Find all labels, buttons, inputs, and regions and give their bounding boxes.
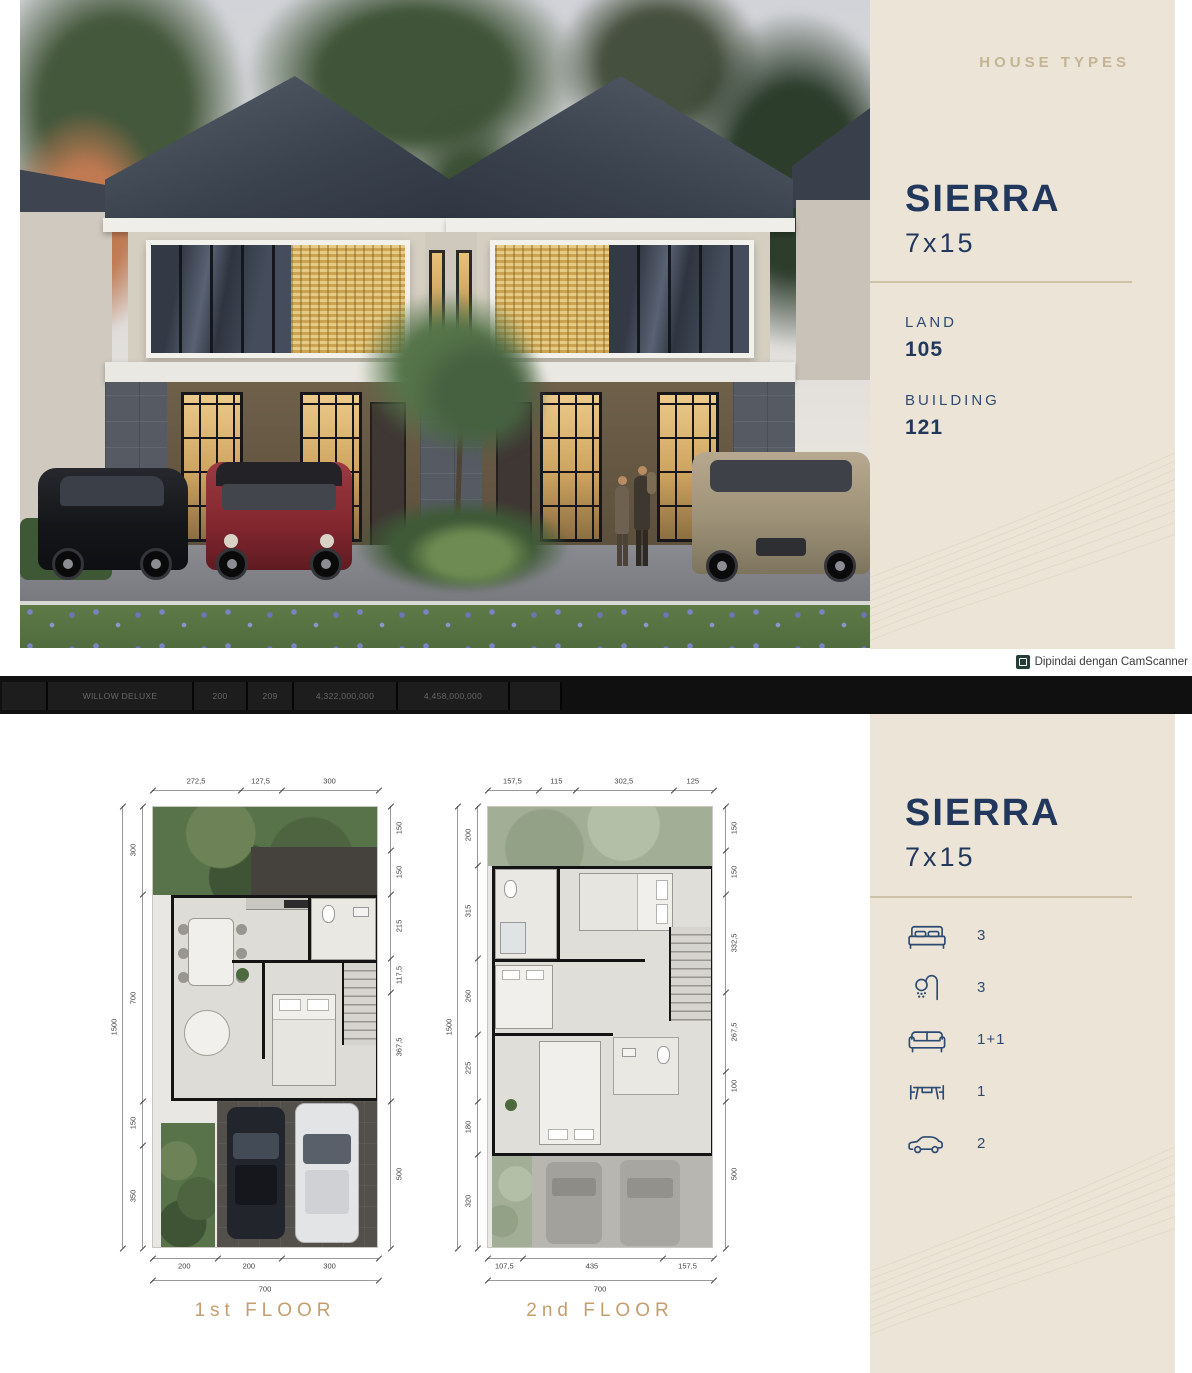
dimension-label: 267,5	[730, 1022, 739, 1041]
bathrooms-count: 3	[977, 979, 986, 996]
spec-living-rooms: 1+1	[905, 1022, 1005, 1056]
dimension-mark	[723, 1245, 729, 1251]
dimension-mark	[376, 787, 382, 793]
dimension-mark	[140, 892, 146, 898]
dimension-mark	[723, 848, 729, 854]
dimension-label: 115	[550, 777, 562, 786]
dimension-mark	[711, 1255, 717, 1261]
house-name: SIERRA	[905, 792, 1061, 835]
brochure-page: HOUSE TYPES SIERRA 7x15 LAND 105 BUILDIN…	[0, 0, 1192, 1373]
dimension-mark	[475, 1245, 481, 1251]
house-size: 7x15	[905, 842, 976, 873]
dimension-label: 367,5	[395, 1037, 404, 1056]
dimension-label: 302,5	[614, 777, 633, 786]
dimension-mark	[152, 1280, 378, 1281]
plan-info-panel: SIERRA 7x15 3 3	[870, 714, 1175, 1373]
bed-icon	[905, 918, 949, 952]
floor-2-label: 2nd FLOOR	[487, 1300, 713, 1322]
dimension-label: 272,5	[187, 777, 206, 786]
dimension-label: 332,5	[730, 934, 739, 953]
dimension-label: 150	[730, 822, 739, 835]
floor-1-label: 1st FLOOR	[152, 1300, 378, 1322]
dimension-mark	[723, 1098, 729, 1104]
dimension-label: 300	[323, 777, 336, 786]
dimension-mark	[457, 806, 458, 1248]
dimension-mark	[725, 806, 726, 1248]
sofa-icon	[905, 1022, 949, 1056]
dimension-label: 200	[243, 1262, 256, 1271]
dimension-mark	[475, 955, 481, 961]
dimension-label: 180	[464, 1121, 473, 1134]
dining-table-icon	[905, 1074, 949, 1108]
dimension-label: 300	[323, 1262, 336, 1271]
dimension-label: 700	[129, 991, 138, 1004]
dimension-label: 150	[395, 866, 404, 879]
dimension-mark	[140, 1142, 146, 1148]
spec-carport: 2	[905, 1126, 986, 1160]
dimension-mark	[487, 1280, 713, 1281]
dimension-label: 215	[395, 920, 404, 933]
dimension-label: 1500	[110, 1019, 119, 1036]
dimension-label: 200	[464, 829, 473, 842]
dimension-label: 107,5	[495, 1262, 514, 1271]
dimension-mark	[475, 862, 481, 868]
dimension-mark	[723, 990, 729, 996]
dimension-label: 1500	[445, 1019, 454, 1036]
dimension-label: 200	[178, 1262, 191, 1271]
dimension-label: 150	[730, 866, 739, 879]
dimension-mark	[388, 892, 394, 898]
dimension-mark	[120, 803, 126, 809]
dimension-label: 700	[594, 1285, 607, 1294]
dimension-label: 125	[687, 777, 700, 786]
dining-count: 1	[977, 1083, 986, 1100]
dimension-mark	[475, 1151, 481, 1157]
dimension-mark	[388, 848, 394, 854]
dimension-label: 127,5	[251, 777, 270, 786]
bedrooms-count: 3	[977, 927, 986, 944]
dimension-label: 157,5	[678, 1262, 697, 1271]
dimension-mark	[711, 1277, 717, 1283]
dimension-mark	[390, 806, 391, 1248]
shower-icon	[905, 970, 949, 1004]
carport-count: 2	[977, 1135, 986, 1152]
dimension-label: 300	[129, 844, 138, 857]
dimension-mark	[475, 803, 481, 809]
dimension-mark	[140, 803, 146, 809]
dimension-mark	[140, 1245, 146, 1251]
dimension-mark	[711, 787, 717, 793]
car-icon	[905, 1126, 949, 1160]
dimension-label: 225	[464, 1061, 473, 1074]
dimension-label: 435	[586, 1262, 599, 1271]
dimension-mark	[477, 806, 478, 1248]
dimension-label: 500	[730, 1168, 739, 1181]
dimension-mark	[723, 803, 729, 809]
dimension-mark	[388, 955, 394, 961]
dimension-mark	[723, 892, 729, 898]
dimension-label: 315	[464, 905, 473, 918]
dimension-label: 150	[395, 822, 404, 835]
dimension-mark	[142, 806, 143, 1248]
dimension-label: 320	[464, 1195, 473, 1208]
dimension-mark	[388, 1098, 394, 1104]
dimension-mark	[455, 1245, 461, 1251]
dimension-label: 117,5	[395, 966, 404, 984]
divider-line	[870, 896, 1132, 898]
spec-dining: 1	[905, 1074, 986, 1108]
dimension-mark	[376, 1255, 382, 1261]
dimension-mark	[388, 803, 394, 809]
dimension-mark	[152, 1258, 378, 1259]
spec-bathrooms: 3	[905, 970, 986, 1004]
spec-bedrooms: 3	[905, 918, 986, 952]
dimension-mark	[388, 1245, 394, 1251]
dimension-mark	[455, 803, 461, 809]
dimension-mark	[376, 1277, 382, 1283]
dimension-mark	[140, 1098, 146, 1104]
dimension-label: 150	[129, 1117, 138, 1130]
dimension-label: 700	[259, 1285, 272, 1294]
dimension-mark	[475, 1098, 481, 1104]
dimension-label: 350	[129, 1190, 138, 1203]
dimension-label: 100	[730, 1080, 739, 1093]
dimension-label: 157,5	[503, 777, 522, 786]
dimension-mark	[487, 790, 713, 791]
dimension-label: 500	[395, 1168, 404, 1181]
dimension-mark	[122, 806, 123, 1248]
dimension-mark	[475, 1032, 481, 1038]
dimension-mark	[120, 1245, 126, 1251]
dimension-mark	[723, 1069, 729, 1075]
dimension-label: 260	[464, 990, 473, 1003]
dimension-mark	[152, 790, 378, 791]
dimension-mark	[388, 990, 394, 996]
living-rooms-count: 1+1	[977, 1031, 1005, 1048]
